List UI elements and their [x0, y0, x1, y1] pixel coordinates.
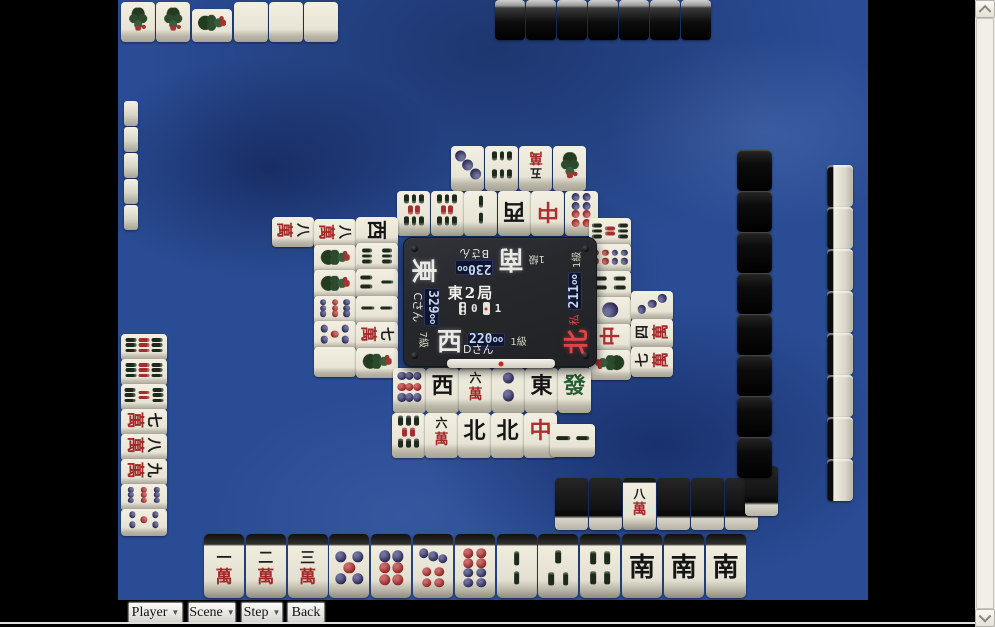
- riichi-stick-icon: [483, 302, 490, 315]
- honba-stick-icon: [459, 302, 466, 315]
- bottom-hand-tile[interactable]: [580, 534, 620, 598]
- bottom-pond-row1-tile: 西: [426, 368, 459, 413]
- left-hand-tile: 八萬: [121, 434, 167, 461]
- player-info-bottom: 西 220oo 1級: [437, 323, 567, 357]
- bottom-hand-tile[interactable]: 南: [706, 534, 746, 598]
- dead-wall-tile: [555, 478, 588, 530]
- dropdown-arrow-icon: ▼: [171, 608, 179, 617]
- right-pond-row2-tile: 四萬: [631, 319, 673, 349]
- bottom-hand-tile[interactable]: 三萬: [288, 534, 328, 598]
- dead-wall-tile: [691, 478, 724, 530]
- scrollbar-up-button[interactable]: [975, 0, 995, 18]
- top-pond-row1-tile: 西: [498, 191, 531, 236]
- top-hand-tile: [588, 0, 618, 40]
- right-wall-tile: [737, 232, 772, 273]
- top-meld-sou1-tile: [121, 2, 155, 42]
- left-wall-tile: [124, 101, 138, 126]
- right-pond-row2-tile: 七萬: [631, 347, 673, 377]
- top-meld-haku-tile: [304, 2, 338, 42]
- left-pond-row2-tile: [314, 347, 356, 377]
- bottom-hand-tile[interactable]: 南: [664, 534, 704, 598]
- top-pond-row2-tile: 五萬: [519, 146, 552, 191]
- bottom-riichi-tile-tile: [550, 424, 595, 457]
- seat-wind: 東: [407, 258, 443, 283]
- top-hand-tile: [650, 0, 680, 40]
- left-pond-row1-tile: [356, 348, 398, 378]
- left-hand-tile: 九萬: [121, 459, 167, 486]
- right-wall-tile: [737, 437, 772, 478]
- top-meld-called-tile: [192, 9, 232, 42]
- bottom-divider: [0, 622, 975, 624]
- top-pond-row2-tile: [553, 146, 586, 191]
- left-hand-tile: [121, 484, 167, 511]
- right-wall-tile: [737, 396, 772, 437]
- bottom-hand-tile[interactable]: [413, 534, 453, 598]
- scene-menu-button[interactable]: Scene▼: [188, 602, 236, 623]
- bottom-hand-tile[interactable]: 南: [622, 534, 662, 598]
- dropdown-arrow-icon: ▼: [227, 608, 235, 617]
- top-pond-row1-tile: [464, 191, 497, 236]
- right-wall-tile: [737, 314, 772, 355]
- right-hand-tile: [827, 333, 853, 375]
- left-wall-tile: [124, 153, 138, 178]
- left-pond-row3-tile: 八萬: [272, 217, 314, 247]
- right-hand-tile: [827, 291, 853, 333]
- bottom-pond-row1-tile: 東: [525, 368, 558, 413]
- bottom-hand-tile[interactable]: [371, 534, 411, 598]
- player-score: 230oo: [455, 260, 493, 275]
- right-hand-tile: [827, 417, 853, 459]
- player-menu-button[interactable]: Player▼: [128, 602, 183, 623]
- bottom-pond-row2-tile: 北: [491, 413, 524, 458]
- scrollbar-thumb[interactable]: [976, 18, 994, 609]
- chevron-up-icon: [979, 5, 992, 18]
- honba-count: 0: [471, 302, 478, 315]
- right-hand-tile: [827, 459, 853, 501]
- bottom-hand-tile[interactable]: [497, 534, 537, 598]
- player-score: 211oo: [568, 272, 583, 310]
- riichi-stick-dot-icon: [499, 361, 504, 366]
- left-wall-tile: [124, 205, 138, 230]
- bottom-pond-row2-tile: [392, 413, 425, 458]
- seat-wind: 西: [437, 322, 462, 358]
- top-pond-row2-tile: [451, 146, 484, 191]
- mahjong-replay-window: 東南 喰断ナシ赤ナシ 五萬西中七萬八萬九萬八萬八萬西七萬中四萬七萬西六萬東發六萬…: [0, 0, 995, 627]
- top-meld-haku-tile: [269, 2, 303, 42]
- bottom-hand-tile[interactable]: [538, 534, 578, 598]
- riichi-stick-on-table: [447, 359, 555, 368]
- player-info-top: 1級 南 230oo Bさん: [439, 239, 561, 283]
- bottom-pond-row1-tile: [393, 368, 426, 413]
- bottom-pond-row1-tile: 發: [558, 368, 591, 413]
- round-indicator: 東2局: [421, 282, 521, 303]
- top-meld-haku-tile: [234, 2, 268, 42]
- right-wall-tile: [737, 355, 772, 396]
- right-hand-tile: [827, 375, 853, 417]
- top-pond-row2-tile: [485, 146, 518, 191]
- top-hand-tile: [619, 0, 649, 40]
- bottom-pond-row2-tile: 北: [458, 413, 491, 458]
- left-hand-tile: [121, 359, 167, 386]
- top-hand-tile: [495, 0, 525, 40]
- left-hand-tile: [121, 334, 167, 361]
- left-hand-tile: [121, 509, 167, 536]
- left-wall-tile: [124, 127, 138, 152]
- player-name: Dさん: [463, 344, 493, 356]
- stick-counters: 0 1: [459, 302, 501, 315]
- player-rank: 1級: [528, 254, 544, 269]
- bottom-pond-row1-tile: [492, 368, 525, 413]
- top-hand-tile: [681, 0, 711, 40]
- dead-wall-tile: 八萬: [623, 478, 656, 530]
- top-pond-row1-tile: [397, 191, 430, 236]
- left-hand-tile: [121, 384, 167, 411]
- back-button[interactable]: Back: [287, 602, 325, 623]
- player-name: Bさん: [460, 247, 490, 259]
- right-hand-tile: [827, 165, 853, 207]
- bottom-hand-tile[interactable]: [329, 534, 369, 598]
- right-hand-tile: [827, 207, 853, 249]
- vertical-scrollbar[interactable]: [975, 0, 995, 627]
- bottom-hand-tile[interactable]: [455, 534, 495, 598]
- dropdown-arrow-icon: ▼: [272, 608, 280, 617]
- right-wall-tile: [737, 273, 772, 314]
- top-pond-row1-tile: 中: [531, 191, 564, 236]
- step-menu-button[interactable]: Step▼: [241, 602, 283, 623]
- scrollbar-down-button[interactable]: [975, 609, 995, 627]
- top-meld-sou1-tile: [156, 2, 190, 42]
- player-rank: 7級: [418, 331, 433, 347]
- right-hand-tile: [827, 249, 853, 291]
- right-wall-tile: [737, 150, 772, 191]
- player-name: 私: [569, 314, 581, 325]
- dead-wall-tile: [589, 478, 622, 530]
- player-rank: 1級: [568, 252, 583, 268]
- right-wall-tile: [737, 191, 772, 232]
- top-hand-tile: [557, 0, 587, 40]
- top-pond-row1-tile: [431, 191, 464, 236]
- left-wall-tile: [124, 179, 138, 204]
- riichi-stick-count: 1: [495, 302, 502, 315]
- bottom-pond-row2-tile: 六萬: [425, 413, 458, 458]
- bottom-hand-tile[interactable]: 二萬: [246, 534, 286, 598]
- top-hand-tile: [526, 0, 556, 40]
- seat-wind: 南: [498, 243, 523, 279]
- left-hand-tile: 七萬: [121, 409, 167, 436]
- dead-wall-tile: [657, 478, 690, 530]
- bottom-hand-tile[interactable]: 一萬: [204, 534, 244, 598]
- center-score-panel: 1級 南 230oo Bさん 東 329oo Cさん 7級 北 私: [403, 237, 597, 367]
- player-rank: 1級: [510, 333, 526, 348]
- bottom-pond-row1-tile: 六萬: [459, 368, 492, 413]
- chevron-down-icon: [979, 610, 992, 623]
- right-pond-row2-tile: [631, 291, 673, 321]
